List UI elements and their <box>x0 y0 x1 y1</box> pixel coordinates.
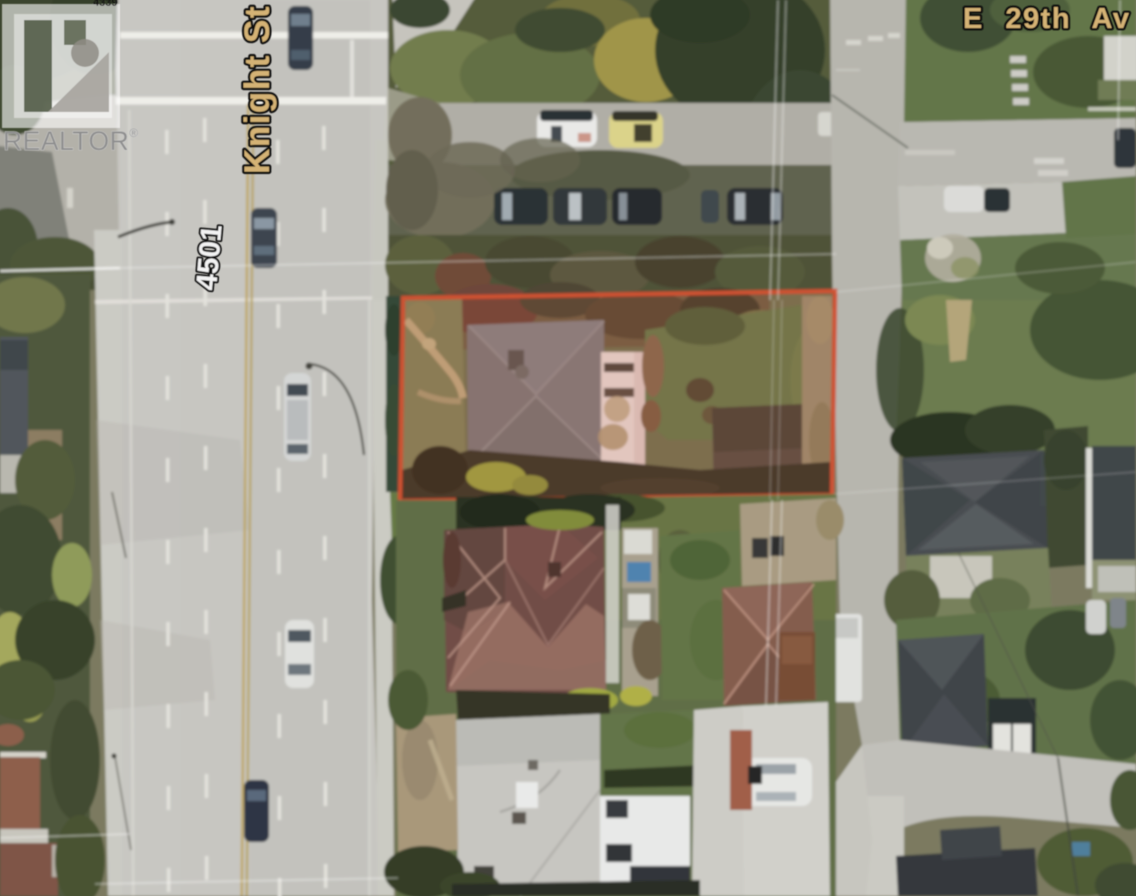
svg-text:4339: 4339 <box>93 0 117 9</box>
svg-text:E 29th Av: E 29th Av <box>963 3 1131 35</box>
svg-text:4501: 4501 <box>190 223 229 291</box>
svg-text:Knight St: Knight St <box>238 5 277 174</box>
svg-text:REALTOR®: REALTOR® <box>3 126 139 156</box>
